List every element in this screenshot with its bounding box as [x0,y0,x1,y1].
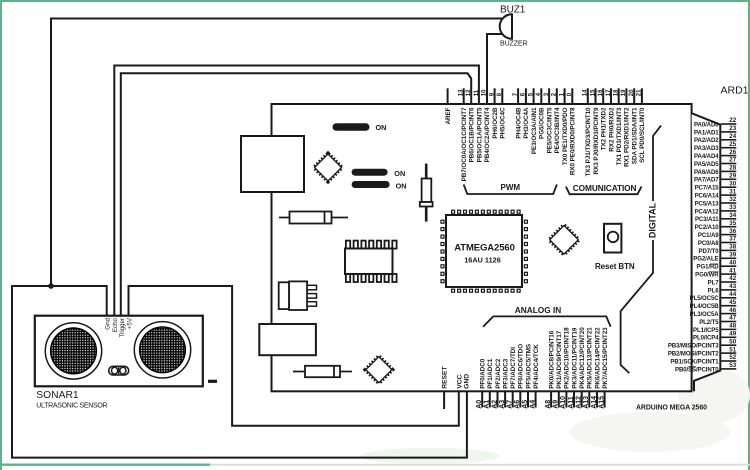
svg-text:PL1/ICP5: PL1/ICP5 [693,327,719,334]
svg-text:TX0 PE1/TXD0/PDO: TX0 PE1/TXD0/PDO [562,107,569,165]
svg-text:ON: ON [394,169,405,178]
svg-text:PF3/ADC3: PF3/ADC3 [502,358,509,389]
svg-text:21: 21 [637,89,643,96]
svg-text:PH3/OC4A: PH3/OC4A [523,107,530,139]
svg-text:35: 35 [729,220,736,227]
svg-text:RX1 PD2/RXD1/INT2: RX1 PD2/RXD1/INT2 [624,107,631,167]
svg-text:ARDUINO MEGA 2560: ARDUINO MEGA 2560 [636,405,707,412]
svg-text:19: 19 [621,89,627,96]
svg-text:PC2/A10: PC2/A10 [695,224,720,231]
svg-text:PH5/OC4C: PH5/OC4C [500,107,507,139]
svg-text:26: 26 [729,149,736,156]
svg-text:PB4/OC2A/PCINT4: PB4/OC2A/PCINT4 [484,107,491,162]
svg-text:A11: A11 [568,396,575,409]
svg-text:37: 37 [729,236,736,243]
svg-text:10: 10 [482,89,488,96]
svg-text:GND: GND [464,374,471,389]
svg-text:36: 36 [729,228,736,235]
svg-text:22: 22 [729,117,736,124]
svg-text:A0: A0 [476,400,483,409]
svg-text:PA4/AD4: PA4/AD4 [694,153,719,160]
svg-text:34: 34 [729,212,736,219]
svg-text:ULTRASONIC SENSOR: ULTRASONIC SENSOR [36,402,107,409]
svg-text:43: 43 [729,283,736,290]
svg-text:A13: A13 [583,396,590,409]
svg-text:PG0/WR: PG0/WR [695,272,719,279]
svg-text:AREF: AREF [445,107,452,124]
svg-text:PF4/ADC4/TCK: PF4/ADC4/TCK [533,344,540,389]
svg-text:PL0/ICP4: PL0/ICP4 [693,335,719,342]
svg-text:PH4/OC4B: PH4/OC4B [515,107,522,139]
svg-text:PC6/A14: PC6/A14 [695,193,720,200]
svg-text:PA3/AD3: PA3/AD3 [694,145,719,152]
svg-text:PA1/AD1: PA1/AD1 [694,129,719,136]
svg-text:Gnd: Gnd [105,317,112,329]
svg-text:11: 11 [474,89,480,96]
svg-text:53: 53 [729,362,736,369]
svg-text:PB2/MOSI/PCINT2: PB2/MOSI/PCINT2 [668,351,719,358]
svg-text:PC1/A9: PC1/A9 [698,232,719,239]
svg-text:30: 30 [729,180,736,187]
svg-text:PB5/OC1A/PCINT5: PB5/OC1A/PCINT5 [476,107,483,162]
svg-text:17: 17 [606,89,612,96]
svg-text:PK4/ADC12/PCINT20: PK4/ADC12/PCINT20 [579,327,586,389]
svg-text:A2: A2 [491,400,498,409]
svg-text:PG1/RD: PG1/RD [697,264,720,271]
svg-text:20: 20 [629,89,635,96]
svg-text:RESET: RESET [441,365,448,388]
svg-text:COMUNICATION: COMUNICATION [573,183,637,193]
svg-text:16: 16 [598,89,604,96]
svg-text:SONAR1: SONAR1 [36,390,79,401]
svg-text:PC3/A11: PC3/A11 [695,216,719,223]
svg-text:39: 39 [729,252,736,259]
svg-text:14: 14 [583,89,589,96]
svg-text:PF2/ADC2: PF2/ADC2 [495,358,502,389]
svg-text:51: 51 [729,346,736,353]
svg-text:PK5/ADC13/PCINT21: PK5/ADC13/PCINT21 [587,327,594,389]
svg-text:PG5/OC0B: PG5/OC0B [539,107,546,139]
svg-text:PF0/ADC0: PF0/ADC0 [480,358,487,389]
svg-text:A10: A10 [560,396,567,409]
svg-text:PA5/AD5: PA5/AD5 [694,161,719,168]
svg-text:PA6/AD6: PA6/AD6 [694,169,719,176]
svg-text:A9: A9 [553,400,560,409]
svg-text:16AU 1126: 16AU 1126 [464,255,501,264]
svg-text:Trigger: Trigger [119,318,126,337]
svg-text:Reset BTN: Reset BTN [595,262,635,271]
svg-text:PC4/A12: PC4/A12 [695,208,720,215]
svg-text:12: 12 [466,89,472,96]
svg-text:44: 44 [729,291,736,298]
svg-text:PL5/OC5C: PL5/OC5C [690,295,720,302]
svg-text:38: 38 [729,244,736,251]
svg-text:PL4/OC5B: PL4/OC5B [690,303,720,310]
svg-text:29: 29 [729,173,736,180]
svg-text:A3: A3 [499,400,506,409]
svg-text:PE3/OC3A/AIN1: PE3/OC3A/AIN1 [531,107,538,154]
svg-text:VCC: VCC [457,374,464,388]
svg-text:PF6/ADC6/TDO: PF6/ADC6/TDO [518,344,525,389]
svg-text:PB0/SS/PCINT0: PB0/SS/PCINT0 [675,366,719,373]
svg-text:PB3/MISO/PCINT3: PB3/MISO/PCINT3 [668,343,719,350]
svg-text:A15: A15 [598,396,605,409]
svg-text:A12: A12 [576,396,583,409]
svg-text:BUZZER: BUZZER [500,40,527,47]
svg-text:PE4/OC3B/INT4: PE4/OC3B/INT4 [554,107,561,153]
svg-text:PB1/SCK/PCINT1: PB1/SCK/PCINT1 [670,358,719,365]
svg-text:50: 50 [729,338,736,345]
svg-text:33: 33 [729,204,736,211]
svg-text:PA2/AD2: PA2/AD2 [694,137,719,144]
svg-text:32: 32 [729,196,736,203]
svg-text:45: 45 [729,299,736,306]
svg-text:PK2/ADC10/PCINT18: PK2/ADC10/PCINT18 [564,327,571,389]
svg-text:PB7/OC0A/OC1C/PCINT7: PB7/OC0A/OC1C/PCINT7 [461,107,468,181]
svg-text:48: 48 [729,323,736,330]
svg-text:ON: ON [396,182,407,191]
svg-text:ARD1: ARD1 [721,85,749,97]
svg-text:PL2/T5: PL2/T5 [699,319,719,326]
svg-text:RX2 PH0/RXD2: RX2 PH0/RXD2 [608,107,615,152]
svg-text:PH6/OC2B: PH6/OC2B [492,107,499,139]
svg-text:BUZ1: BUZ1 [500,5,526,16]
svg-text:PA0/AD0: PA0/AD0 [694,121,719,128]
svg-text:TX3 PJ1/TXD3/PCINT10: TX3 PJ1/TXD3/PCINT10 [585,107,592,177]
svg-text:ATMEGA2560: ATMEGA2560 [454,243,515,254]
svg-text:A8: A8 [545,400,552,409]
svg-text:PK6/ADC14/PCINT22: PK6/ADC14/PCINT22 [594,327,601,389]
svg-text:13: 13 [459,89,465,96]
svg-text:SCL PD0/SCL/INT0: SCL PD0/SCL/INT0 [639,107,646,163]
svg-text:PL6: PL6 [708,287,720,294]
svg-text:ON: ON [376,123,387,132]
svg-text:PB6/OC1B/PCINT6: PB6/OC1B/PCINT6 [469,107,476,162]
svg-text:49: 49 [729,331,736,338]
svg-text:15: 15 [590,89,596,96]
svg-text:31: 31 [729,188,736,195]
svg-text:PWM: PWM [501,183,521,192]
svg-text:PD7/T0: PD7/T0 [699,248,720,255]
svg-text:52: 52 [729,354,736,361]
svg-text:PG2/ALE: PG2/ALE [693,256,718,263]
svg-text:PC0/A8: PC0/A8 [698,240,719,247]
svg-text:18: 18 [614,89,620,96]
svg-text:PA7/AD7: PA7/AD7 [694,177,719,184]
svg-text:PL3/OC5A: PL3/OC5A [690,311,720,318]
svg-text:42: 42 [729,275,736,282]
svg-text:PF7/ADC7/TDI: PF7/ADC7/TDI [510,347,517,389]
svg-text:27: 27 [729,157,736,164]
svg-text:47: 47 [729,315,736,322]
svg-text:DIGITAL: DIGITAL [648,202,658,238]
svg-text:24: 24 [729,133,736,140]
svg-text:RX3 PJ0/RXD3/PCINT9: RX3 PJ0/RXD3/PCINT9 [593,107,600,174]
svg-text:SDA PD1/SDA/INT1: SDA PD1/SDA/INT1 [632,107,639,164]
svg-text:28: 28 [729,165,736,172]
svg-text:A5: A5 [522,400,529,409]
svg-text:TX2 PH1/TXD2: TX2 PH1/TXD2 [601,107,608,150]
svg-text:PC7/A15: PC7/A15 [695,185,720,192]
svg-text:PC5/A13: PC5/A13 [695,200,720,207]
svg-text:RX0 PE0/RXD0/PCINT8: RX0 PE0/RXD0/PCINT8 [570,107,577,175]
svg-text:25: 25 [729,141,736,148]
svg-text:PK0/ADC8/PCINT16: PK0/ADC8/PCINT16 [548,330,555,389]
svg-text:41: 41 [729,267,736,274]
svg-text:A14: A14 [591,396,598,409]
svg-text:ANALOG IN: ANALOG IN [515,305,562,315]
svg-text:A1: A1 [484,400,491,409]
svg-text:PL7: PL7 [708,279,720,286]
svg-text:A7: A7 [507,400,514,409]
svg-text:Echo: Echo [112,317,119,332]
svg-text:23: 23 [729,125,736,132]
svg-text:A4: A4 [529,400,536,409]
svg-text:PE5/OC3C/INT5: PE5/OC3C/INT5 [546,107,553,153]
svg-text:+5V: +5V [126,317,133,329]
svg-text:PF5/ADC5/TMS: PF5/ADC5/TMS [525,344,532,389]
svg-text:40: 40 [729,259,736,266]
svg-text:PK1/ADC9/PCINT17: PK1/ADC9/PCINT17 [556,330,563,389]
svg-text:46: 46 [729,307,736,314]
svg-text:PF1/ADC1: PF1/ADC1 [487,358,494,389]
svg-text:A6: A6 [514,400,521,409]
svg-text:TX1 PD3/TXD1/INT3: TX1 PD3/TXD1/INT3 [616,107,623,165]
svg-text:PK3/ADC11/PCINT19: PK3/ADC11/PCINT19 [571,327,578,389]
svg-text:PK7/ADC15/PCINT23: PK7/ADC15/PCINT23 [602,327,609,389]
